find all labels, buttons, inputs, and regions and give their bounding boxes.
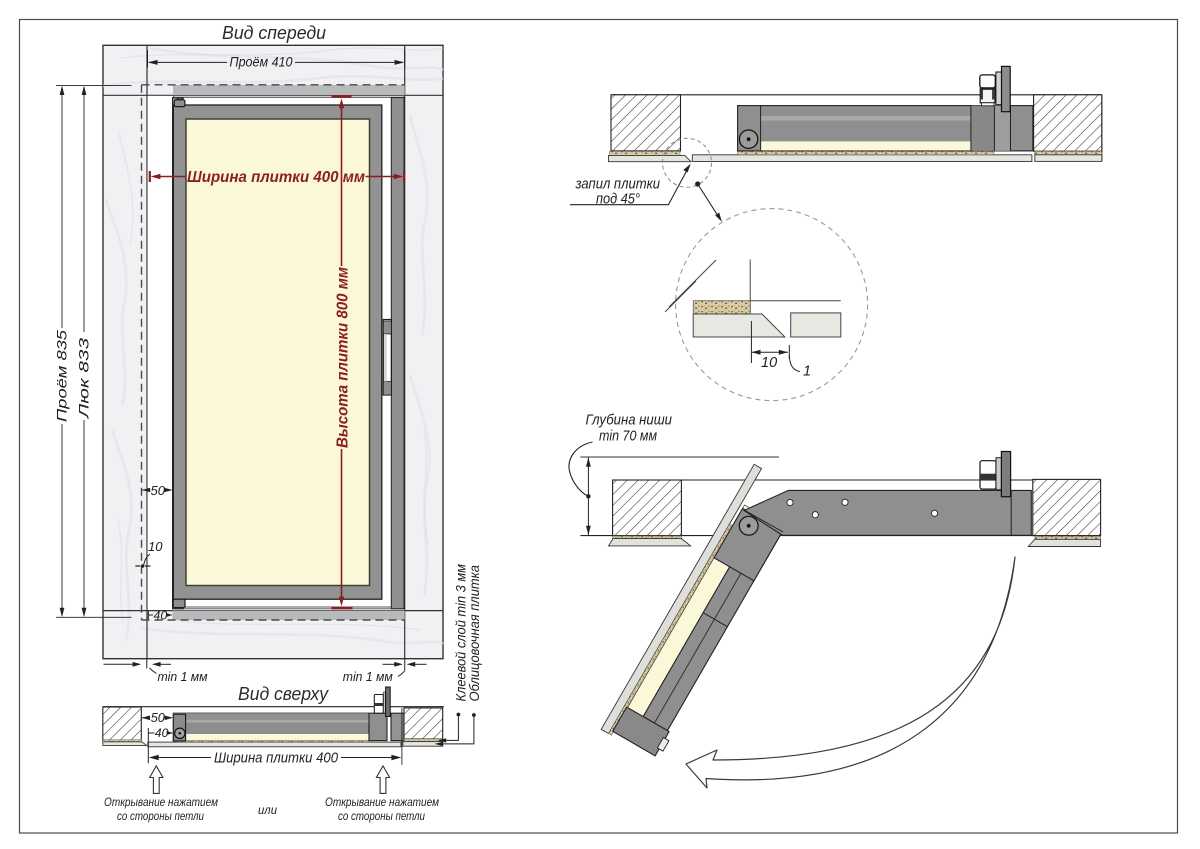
svg-text:Проём 835: Проём 835 — [55, 329, 70, 422]
svg-text:min 1 мм: min 1 мм — [158, 669, 208, 684]
svg-text:40: 40 — [155, 726, 169, 740]
svg-text:Ширина плитки 400 мм: Ширина плитки 400 мм — [187, 169, 365, 186]
svg-text:со стороны петли: со стороны петли — [338, 811, 426, 823]
svg-text:min 70 мм: min 70 мм — [599, 428, 657, 445]
svg-text:min 1 мм: min 1 мм — [343, 669, 393, 684]
svg-text:Облицовочная плитка: Облицовочная плитка — [467, 565, 482, 702]
svg-text:1: 1 — [803, 364, 811, 380]
svg-text:Вид спереди: Вид спереди — [222, 23, 326, 43]
svg-text:50: 50 — [151, 711, 165, 725]
svg-text:со стороны петли: со стороны петли — [117, 811, 205, 823]
svg-text:Высота плитки 800 мм: Высота плитки 800 мм — [335, 267, 352, 448]
svg-text:Ширина плитки 400: Ширина плитки 400 — [214, 749, 339, 766]
svg-text:Люк 833: Люк 833 — [77, 337, 92, 419]
svg-text:Глубина ниши: Глубина ниши — [586, 412, 673, 429]
svg-text:10: 10 — [148, 539, 163, 554]
svg-text:10: 10 — [761, 355, 777, 371]
svg-text:Открывание нажатием: Открывание нажатием — [104, 797, 218, 809]
svg-text:Вид сверху: Вид сверху — [238, 684, 329, 704]
svg-text:или: или — [258, 803, 277, 817]
svg-text:40: 40 — [154, 608, 168, 622]
svg-text:Открывание нажатием: Открывание нажатием — [325, 797, 439, 809]
svg-text:50: 50 — [151, 483, 166, 498]
svg-text:Проём 410: Проём 410 — [230, 55, 293, 70]
